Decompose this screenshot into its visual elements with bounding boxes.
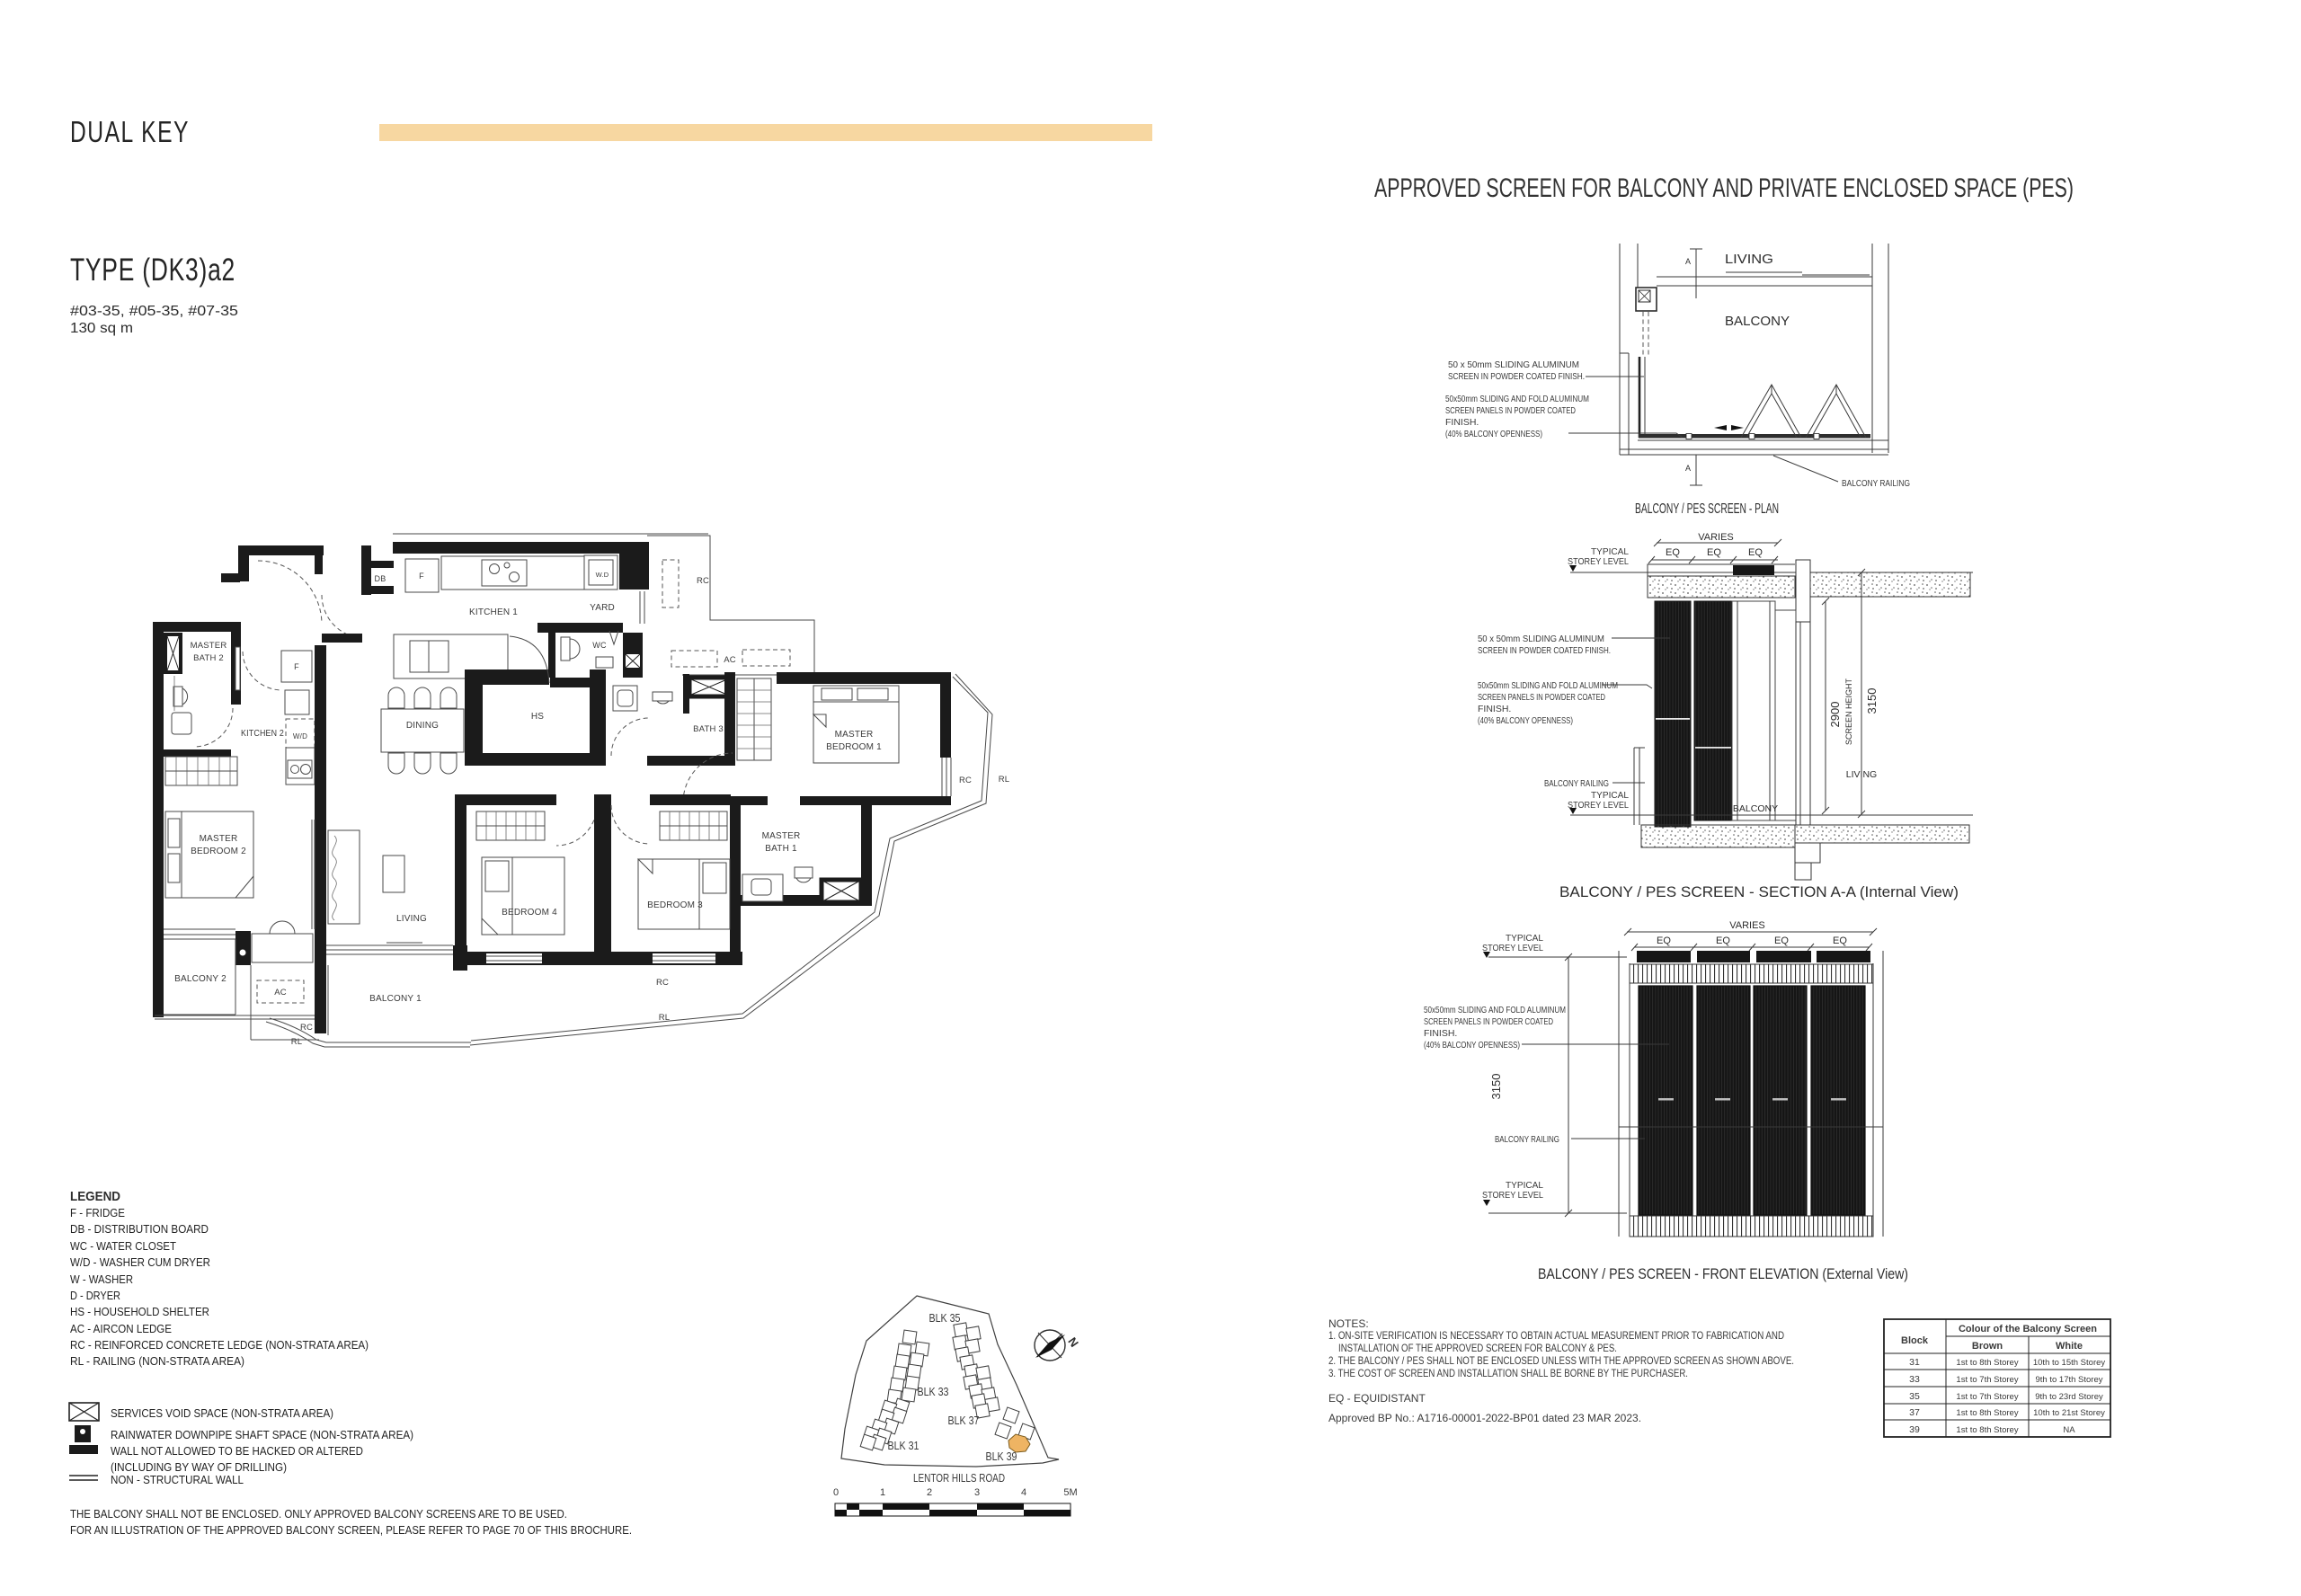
svg-text:50 x 50mm SLIDING ALUMINUM: 50 x 50mm SLIDING ALUMINUM (1478, 634, 1604, 644)
svg-text:#03-35, #05-35, #07-35: #03-35, #05-35, #07-35 (70, 304, 238, 319)
svg-text:NA: NA (2063, 1425, 2075, 1435)
svg-text:EQ: EQ (1774, 935, 1789, 946)
svg-text:50x50mm SLIDING AND FOLD ALUM: 50x50mm SLIDING AND FOLD ALUMINUM (1445, 394, 1589, 404)
svg-text:SERVICES VOID SPACE (NON-STRAT: SERVICES VOID SPACE (NON-STRATA AREA) (111, 1406, 333, 1420)
svg-text:EQ: EQ (1666, 547, 1680, 558)
svg-text:3150: 3150 (1489, 1074, 1503, 1100)
svg-text:RL: RL (291, 1037, 303, 1047)
svg-text:MASTER: MASTER (762, 831, 801, 841)
svg-text:BALCONY 2: BALCONY 2 (174, 974, 227, 984)
svg-text:BATH 2: BATH 2 (193, 653, 224, 663)
svg-text:F: F (419, 572, 424, 581)
svg-text:LENTOR HILLS ROAD: LENTOR HILLS ROAD (913, 1471, 1005, 1485)
svg-text:(40% BALCONY OPENNESS): (40% BALCONY OPENNESS) (1478, 715, 1573, 726)
svg-text:50 x 50mm SLIDING ALUMINUM: 50 x 50mm SLIDING ALUMINUM (1448, 359, 1579, 370)
svg-text:KITCHEN 2: KITCHEN 2 (241, 729, 284, 739)
svg-text:EQ: EQ (1716, 935, 1730, 946)
svg-text:4: 4 (1021, 1487, 1026, 1498)
svg-text:FINISH.: FINISH. (1445, 417, 1479, 428)
svg-text:A: A (1685, 464, 1691, 473)
svg-text:WC: WC (592, 641, 607, 650)
svg-text:RL - RAILING (NON-STRATA AREA): RL - RAILING (NON-STRATA AREA) (70, 1354, 244, 1368)
svg-text:F - FRIDGE: F - FRIDGE (70, 1206, 125, 1219)
svg-text:RC: RC (300, 1023, 313, 1033)
svg-text:STOREY LEVEL: STOREY LEVEL (1482, 1191, 1543, 1201)
svg-text:1st to 7th Storey: 1st to 7th Storey (1956, 1392, 2018, 1402)
svg-text:Approved BP No.: A1716-00001-2: Approved BP No.: A1716-00001-2022-BP01 d… (1328, 1412, 1641, 1424)
svg-text:AC - AIRCON LEDGE: AC - AIRCON LEDGE (70, 1322, 172, 1335)
svg-text:NOTES:: NOTES: (1328, 1317, 1369, 1330)
svg-text:EQ: EQ (1748, 547, 1763, 558)
svg-text:EQ - EQUIDISTANT: EQ - EQUIDISTANT (1328, 1392, 1426, 1405)
svg-text:BLK 35: BLK 35 (929, 1312, 961, 1325)
svg-text:9th to 17th Storey: 9th to 17th Storey (2036, 1375, 2103, 1385)
svg-text:LIVING: LIVING (1846, 769, 1877, 780)
svg-text:VARIES: VARIES (1698, 532, 1734, 543)
svg-text:RC: RC (697, 576, 709, 586)
svg-text:SCREEN PANELS IN POWDER COATE: SCREEN PANELS IN POWDER COATED (1478, 692, 1605, 703)
svg-text:3: 3 (974, 1487, 980, 1498)
svg-text:BLK 37: BLK 37 (948, 1414, 980, 1427)
svg-text:DB: DB (375, 574, 386, 583)
svg-text:SCREEN PANELS IN POWDER COATE: SCREEN PANELS IN POWDER COATED (1424, 1016, 1553, 1027)
svg-text:BEDROOM 4: BEDROOM 4 (502, 908, 557, 918)
svg-text:TYPICAL: TYPICAL (1506, 934, 1543, 944)
svg-text:SCREEN IN POWDER COATED FINISH: SCREEN IN POWDER COATED FINISH. (1448, 371, 1585, 382)
svg-text:FINISH.: FINISH. (1478, 704, 1511, 714)
svg-text:WALL NOT ALLOWED TO BE HACKED: WALL NOT ALLOWED TO BE HACKED OR ALTERED (111, 1444, 363, 1458)
svg-text:DINING: DINING (406, 721, 439, 731)
svg-text:HS - HOUSEHOLD SHELTER: HS - HOUSEHOLD SHELTER (70, 1305, 209, 1318)
svg-text:2900: 2900 (1828, 702, 1842, 728)
svg-text:D - DRYER: D - DRYER (70, 1289, 120, 1302)
svg-text:BALCONY RAILING: BALCONY RAILING (1544, 778, 1609, 789)
svg-text:1st to 8th Storey: 1st to 8th Storey (1956, 1358, 2018, 1368)
svg-text:BALCONY: BALCONY (1725, 314, 1790, 329)
svg-text:White: White (2056, 1341, 2083, 1352)
svg-text:RC - REINFORCED CONCRETE LEDGE: RC - REINFORCED CONCRETE LEDGE (NON-STRA… (70, 1338, 369, 1352)
svg-text:MASTER: MASTER (835, 730, 874, 740)
svg-text:W.D: W.D (596, 571, 609, 579)
svg-text:50x50mm SLIDING AND FOLD ALUM: 50x50mm SLIDING AND FOLD ALUMINUM (1424, 1005, 1566, 1015)
svg-text:BALCONY: BALCONY (1733, 803, 1778, 814)
svg-text:37: 37 (1909, 1407, 1920, 1418)
svg-text:3150: 3150 (1865, 688, 1879, 714)
svg-text:BALCONY RAILING: BALCONY RAILING (1842, 478, 1910, 489)
svg-text:A: A (1685, 257, 1691, 266)
svg-text:3. THE COST OF SCREEN AND INST: 3. THE COST OF SCREEN AND INSTALLATION S… (1328, 1367, 1688, 1379)
svg-text:MASTER: MASTER (200, 834, 238, 844)
svg-text:BATH 3: BATH 3 (693, 724, 724, 734)
svg-text:STOREY LEVEL: STOREY LEVEL (1568, 801, 1629, 811)
svg-text:BLK 31: BLK 31 (888, 1440, 920, 1452)
svg-text:BALCONY / PES SCREEN - FRONT E: BALCONY / PES SCREEN - FRONT ELEVATION (… (1538, 1265, 1908, 1282)
svg-text:Brown: Brown (1972, 1341, 2003, 1352)
svg-text:VARIES: VARIES (1729, 920, 1765, 931)
svg-text:APPROVED SCREEN FOR BALCONY AN: APPROVED SCREEN FOR BALCONY AND PRIVATE … (1374, 173, 2074, 203)
svg-text:AC: AC (274, 988, 287, 997)
svg-text:(40% BALCONY OPENNESS): (40% BALCONY OPENNESS) (1424, 1040, 1520, 1051)
svg-text:Block: Block (1901, 1335, 1929, 1346)
svg-text:FINISH.: FINISH. (1424, 1028, 1457, 1039)
svg-text:W/D: W/D (293, 732, 307, 740)
svg-text:EQ: EQ (1707, 547, 1721, 558)
svg-text:SCREEN IN POWDER COATED FINISH: SCREEN IN POWDER COATED FINISH. (1478, 645, 1611, 656)
svg-text:RL: RL (999, 775, 1010, 785)
svg-text:AC: AC (724, 655, 736, 665)
svg-text:1st to 7th Storey: 1st to 7th Storey (1956, 1375, 2018, 1385)
svg-text:FOR AN ILLUSTRATION OF THE APP: FOR AN ILLUSTRATION OF THE APPROVED BALC… (70, 1523, 632, 1537)
svg-text:10th to 15th Storey: 10th to 15th Storey (2033, 1358, 2106, 1368)
svg-text:DUAL KEY: DUAL KEY (70, 115, 190, 148)
svg-text:KITCHEN 1: KITCHEN 1 (469, 607, 518, 617)
svg-text:INSTALLATION OF THE APPROVED S: INSTALLATION OF THE APPROVED SCREEN FOR … (1338, 1342, 1617, 1354)
svg-text:STOREY LEVEL: STOREY LEVEL (1568, 557, 1629, 567)
svg-text:BEDROOM 3: BEDROOM 3 (647, 900, 703, 910)
svg-text:2: 2 (927, 1487, 932, 1498)
svg-text:50x50mm SLIDING AND FOLD ALUM: 50x50mm SLIDING AND FOLD ALUMINUM (1478, 680, 1618, 691)
svg-text:BALCONY 1: BALCONY 1 (369, 994, 422, 1004)
svg-text:RC: RC (959, 776, 972, 785)
svg-text:BALCONY / PES SCREEN - SECTION: BALCONY / PES SCREEN - SECTION A-A (Inte… (1559, 883, 1959, 900)
svg-text:LIVING: LIVING (1725, 252, 1773, 267)
svg-text:BEDROOM 2: BEDROOM 2 (191, 847, 246, 856)
svg-text:SCREEN PANELS IN POWDER COATE: SCREEN PANELS IN POWDER COATED (1445, 405, 1576, 416)
svg-text:THE BALCONY SHALL NOT BE ENCLO: THE BALCONY SHALL NOT BE ENCLOSED. ONLY … (70, 1507, 567, 1521)
svg-text:RAINWATER DOWNPIPE SHAFT SPACE: RAINWATER DOWNPIPE SHAFT SPACE (NON-STRA… (111, 1428, 413, 1441)
svg-text:35: 35 (1909, 1391, 1920, 1402)
svg-text:TYPICAL: TYPICAL (1591, 547, 1629, 557)
svg-text:F: F (294, 662, 299, 671)
svg-text:TYPE (DK3)a2: TYPE (DK3)a2 (70, 253, 235, 288)
svg-text:1st to 8th Storey: 1st to 8th Storey (1956, 1425, 2018, 1435)
svg-text:130 sq m: 130 sq m (70, 321, 133, 336)
svg-text:0: 0 (833, 1487, 839, 1498)
svg-text:2. THE BALCONY / PES SHALL NOT: 2. THE BALCONY / PES SHALL NOT BE ENCLOS… (1328, 1354, 1794, 1367)
svg-text:Colour of the Balcony Screen: Colour of the Balcony Screen (1959, 1324, 2097, 1334)
svg-text:RL: RL (659, 1013, 671, 1023)
svg-text:(INCLUDING BY WAY OF DRILLING): (INCLUDING BY WAY OF DRILLING) (111, 1460, 287, 1474)
svg-text:RC: RC (656, 978, 669, 988)
svg-text:TYPICAL: TYPICAL (1506, 1181, 1543, 1191)
svg-text:5M: 5M (1063, 1487, 1077, 1498)
svg-text:1. ON-SITE VERIFICATION IS NEC: 1. ON-SITE VERIFICATION IS NECESSARY TO … (1328, 1329, 1784, 1342)
svg-text:9th to 23rd Storey: 9th to 23rd Storey (2035, 1392, 2103, 1402)
svg-text:BALCONY RAILING: BALCONY RAILING (1495, 1134, 1559, 1145)
svg-text:EQ: EQ (1657, 935, 1671, 946)
svg-text:BLK 39: BLK 39 (986, 1450, 1017, 1463)
svg-text:W/D - WASHER CUM DRYER: W/D - WASHER CUM DRYER (70, 1255, 210, 1269)
svg-text:39: 39 (1909, 1424, 1920, 1435)
svg-text:LIVING: LIVING (396, 914, 427, 924)
svg-text:31: 31 (1909, 1357, 1920, 1368)
svg-text:LEGEND: LEGEND (70, 1189, 120, 1204)
svg-text:STOREY LEVEL: STOREY LEVEL (1482, 944, 1543, 953)
svg-text:SCREEN HEIGHT: SCREEN HEIGHT (1844, 678, 1853, 745)
svg-text:BEDROOM 1: BEDROOM 1 (826, 742, 882, 752)
svg-text:33: 33 (1909, 1374, 1920, 1385)
svg-text:1st to 8th Storey: 1st to 8th Storey (1956, 1408, 2018, 1418)
svg-text:1: 1 (880, 1487, 885, 1498)
svg-text:HS: HS (531, 712, 544, 722)
svg-text:BLK 33: BLK 33 (918, 1386, 949, 1398)
svg-text:MASTER: MASTER (191, 641, 227, 651)
svg-text:BATH 1: BATH 1 (765, 844, 797, 854)
svg-text:10th to 21st Storey: 10th to 21st Storey (2033, 1408, 2105, 1418)
svg-text:WC - WATER CLOSET: WC - WATER CLOSET (70, 1239, 176, 1253)
svg-text:DB - DISTRIBUTION BOARD: DB - DISTRIBUTION BOARD (70, 1222, 209, 1236)
svg-text:EQ: EQ (1833, 935, 1847, 946)
svg-text:NON - STRUCTURAL WALL: NON - STRUCTURAL WALL (111, 1473, 244, 1486)
svg-text:BALCONY / PES SCREEN - PLAN: BALCONY / PES SCREEN - PLAN (1635, 501, 1779, 517)
svg-text:(40% BALCONY OPENNESS): (40% BALCONY OPENNESS) (1445, 429, 1542, 439)
svg-text:W - WASHER: W - WASHER (70, 1272, 133, 1286)
svg-text:YARD: YARD (590, 603, 615, 613)
svg-text:TYPICAL: TYPICAL (1591, 791, 1629, 801)
